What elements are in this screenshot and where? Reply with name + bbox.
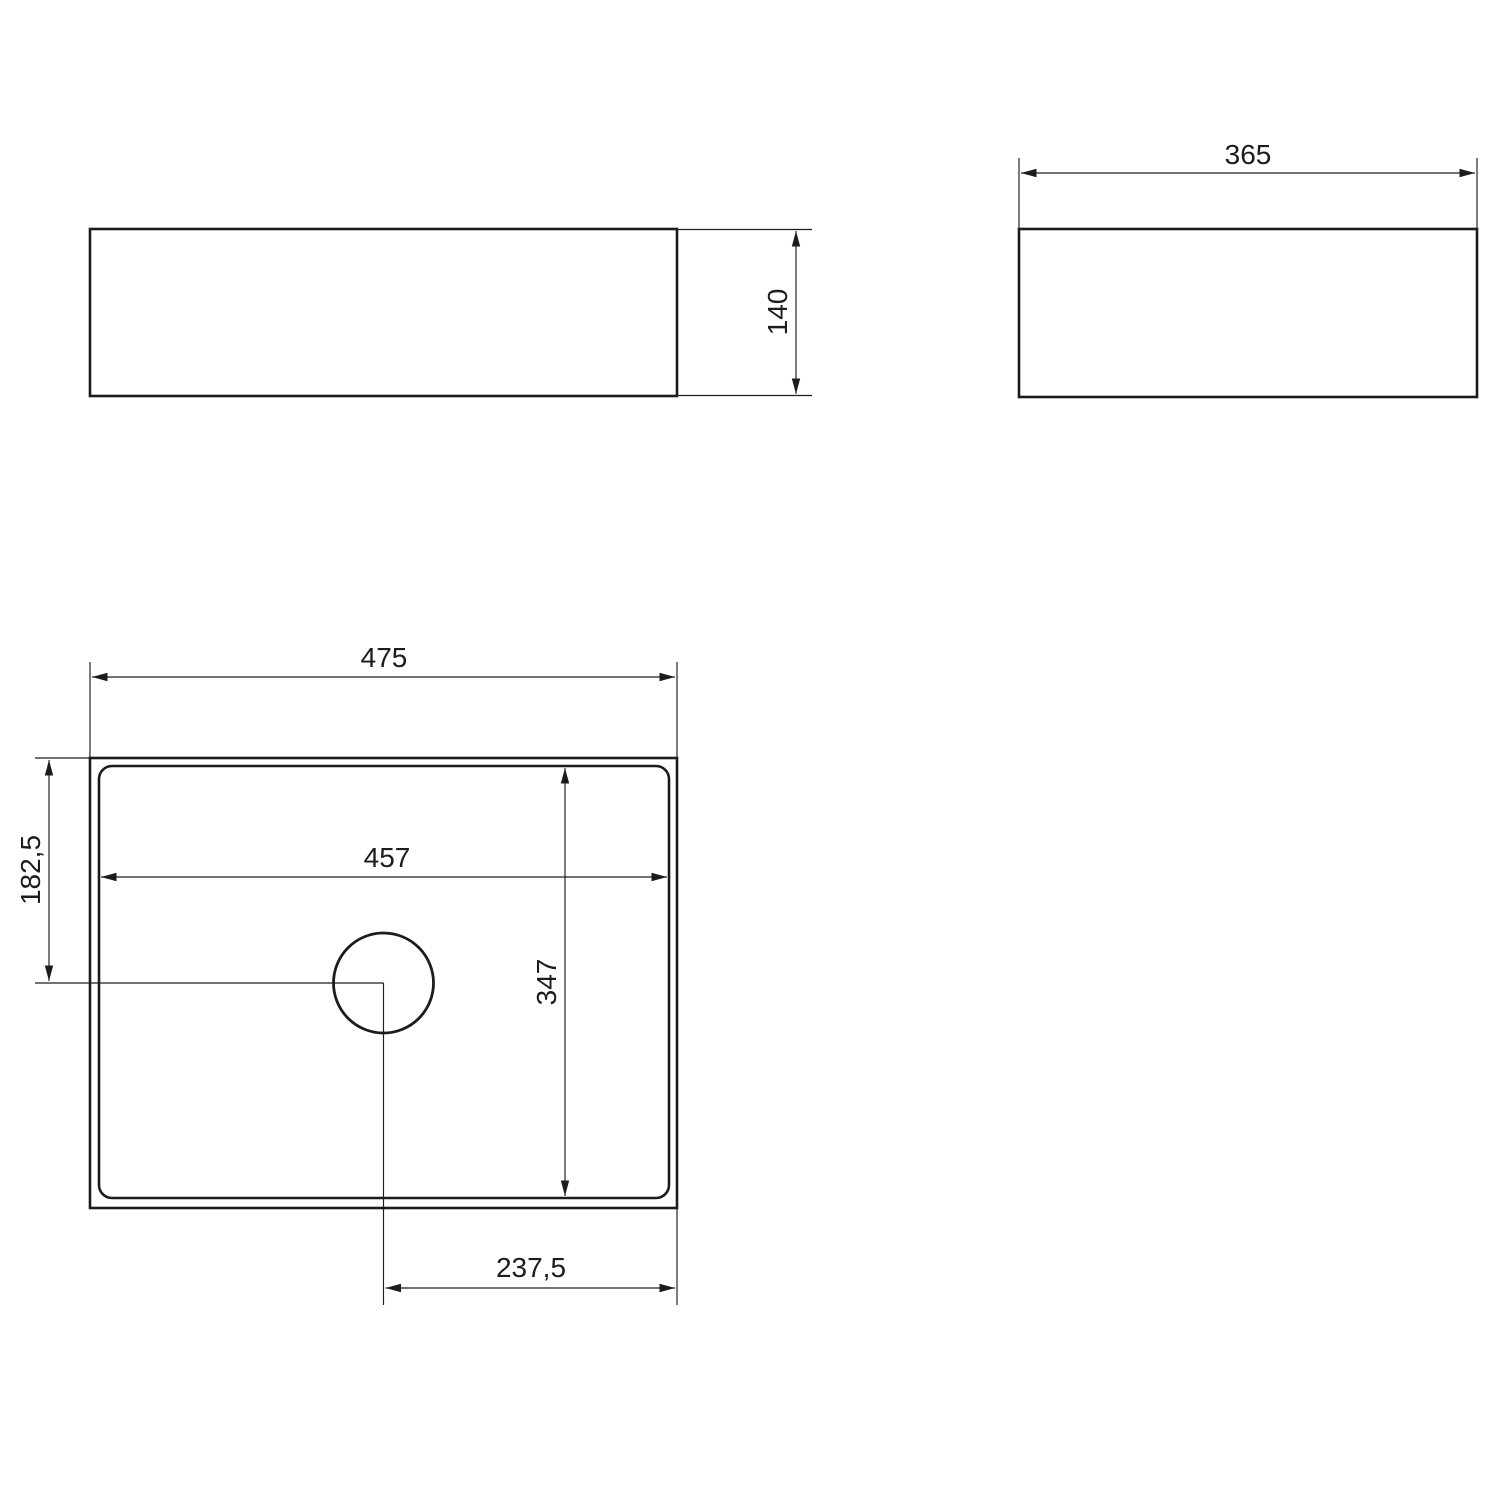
side-view-outline [1019, 229, 1477, 397]
dim-237-label: 237,5 [496, 1252, 566, 1283]
side-view: 365 [1019, 139, 1477, 397]
top-view: 475 457 182,5 347 237,5 [15, 642, 677, 1305]
front-view: 140 [90, 229, 812, 396]
dim-365-label: 365 [1225, 139, 1272, 170]
dim-457-label: 457 [364, 842, 411, 873]
dim-140-label: 140 [762, 289, 793, 336]
front-view-outline [90, 229, 677, 396]
dim-182-label: 182,5 [15, 835, 46, 905]
dim-475-label: 475 [361, 642, 408, 673]
technical-drawing-canvas: 140 365 475 457 182,5 [0, 0, 1500, 1500]
dim-347-label: 347 [531, 959, 562, 1006]
drawing-svg: 140 365 475 457 182,5 [0, 0, 1500, 1500]
